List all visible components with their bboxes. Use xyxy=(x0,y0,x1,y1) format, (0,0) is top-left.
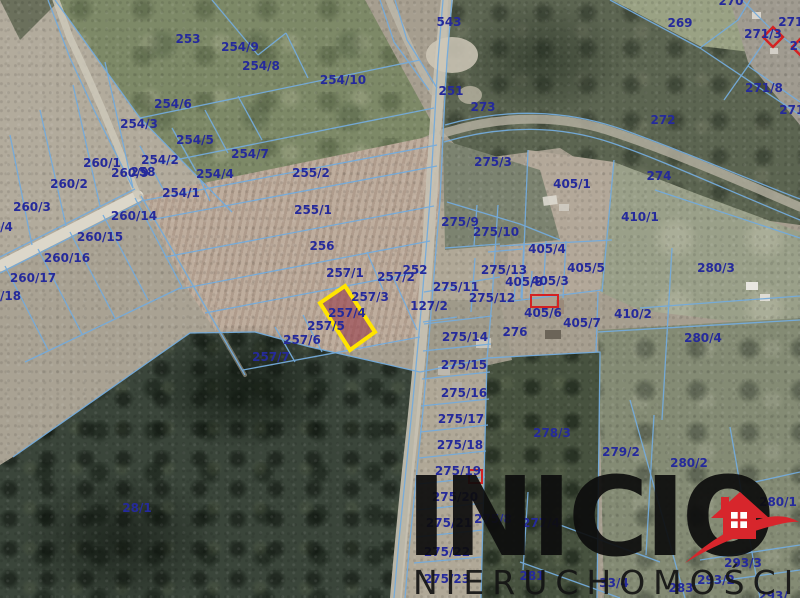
parcel-label: 272 xyxy=(650,113,675,127)
parcel-label: 27 xyxy=(790,39,800,53)
parcel-label: 405/4 xyxy=(528,242,566,256)
parcel-label: 257/1 xyxy=(326,266,364,280)
parcel-label: 271/3 xyxy=(744,27,782,41)
parcel-label: 256 xyxy=(309,239,334,253)
parcel-label: 273 xyxy=(470,100,495,114)
parcel-label: 410/1 xyxy=(621,210,659,224)
parcel-label: 257/6 xyxy=(283,333,321,347)
parcel-label: 257/3 xyxy=(351,290,389,304)
parcel-label: 257/7 xyxy=(252,350,290,364)
parcel-label: 258 xyxy=(130,165,155,179)
parcel-label: 28/1 xyxy=(122,501,151,515)
parcel-label: 260/4 xyxy=(0,220,13,234)
parcel-label: 127/2 xyxy=(410,299,448,313)
parcel-label: 405/6 xyxy=(524,306,562,320)
parcel-label: 275/18 xyxy=(437,438,483,452)
inicio-house-logo xyxy=(683,487,800,567)
parcel-label: 260/18 xyxy=(0,289,21,303)
cadastral-map-image: 253254/9254/8254/10254/6254/3254/5254/22… xyxy=(0,0,800,598)
parcel-label: 254/7 xyxy=(231,147,269,161)
parcel-label: 254/6 xyxy=(154,97,192,111)
parcel-label: 254/3 xyxy=(120,117,158,131)
parcel-label: 280/4 xyxy=(684,331,722,345)
parcel-label: 271/8 xyxy=(745,81,783,95)
parcel-label: 410/2 xyxy=(614,307,652,321)
parcel-label: 543 xyxy=(436,15,461,29)
parcel-label: 251 xyxy=(438,84,463,98)
parcel-label: 255/1 xyxy=(294,203,332,217)
parcel-label: 260/3 xyxy=(13,200,51,214)
parcel-label: 405/3 xyxy=(531,274,569,288)
parcel-label: 270 xyxy=(718,0,743,8)
parcel-label: 260/14 xyxy=(111,209,157,223)
parcel-label: 260/15 xyxy=(77,230,123,244)
parcel-label: 278/3 xyxy=(533,426,571,440)
parcel-label: 254/4 xyxy=(196,167,234,181)
parcel-label: 405/7 xyxy=(563,316,601,330)
parcel-label: 275/14 xyxy=(442,330,488,344)
parcel-label: 269 xyxy=(667,16,692,30)
parcel-label: 275/16 xyxy=(441,386,487,400)
parcel-label: 254/8 xyxy=(242,59,280,73)
parcel-label: 274 xyxy=(646,169,671,183)
parcel-label: 275/3 xyxy=(474,155,512,169)
parcel-label: 252 xyxy=(402,263,427,277)
parcel-label: 255/2 xyxy=(292,166,330,180)
parcel-label: 276 xyxy=(502,325,527,339)
watermark-tagline: NIERUCHOMOŚCI xyxy=(413,566,800,598)
parcel-label: 260/2 xyxy=(50,177,88,191)
parcel-label: 254/9 xyxy=(221,40,259,54)
parcel-label: 275/17 xyxy=(438,412,484,426)
parcel-label: 254/5 xyxy=(176,133,214,147)
parcel-label: 275/15 xyxy=(441,358,487,372)
parcel-label: 275/10 xyxy=(473,225,519,239)
parcel-label: 254/1 xyxy=(162,186,200,200)
parcel-label: 257/5 xyxy=(307,319,345,333)
parcel-label: 405/1 xyxy=(553,177,591,191)
parcel-label: 405/5 xyxy=(567,261,605,275)
parcel-label: 257/4 xyxy=(328,306,366,320)
parcel-label: 271/ xyxy=(779,103,800,117)
parcel-label: 280/3 xyxy=(697,261,735,275)
parcel-label: 253 xyxy=(175,32,200,46)
parcel-label: 260/16 xyxy=(44,251,90,265)
parcel-label: 260/17 xyxy=(10,271,56,285)
window xyxy=(731,512,747,528)
parcel-label: 275/12 xyxy=(469,291,515,305)
parcel-label: 254/10 xyxy=(320,73,366,87)
